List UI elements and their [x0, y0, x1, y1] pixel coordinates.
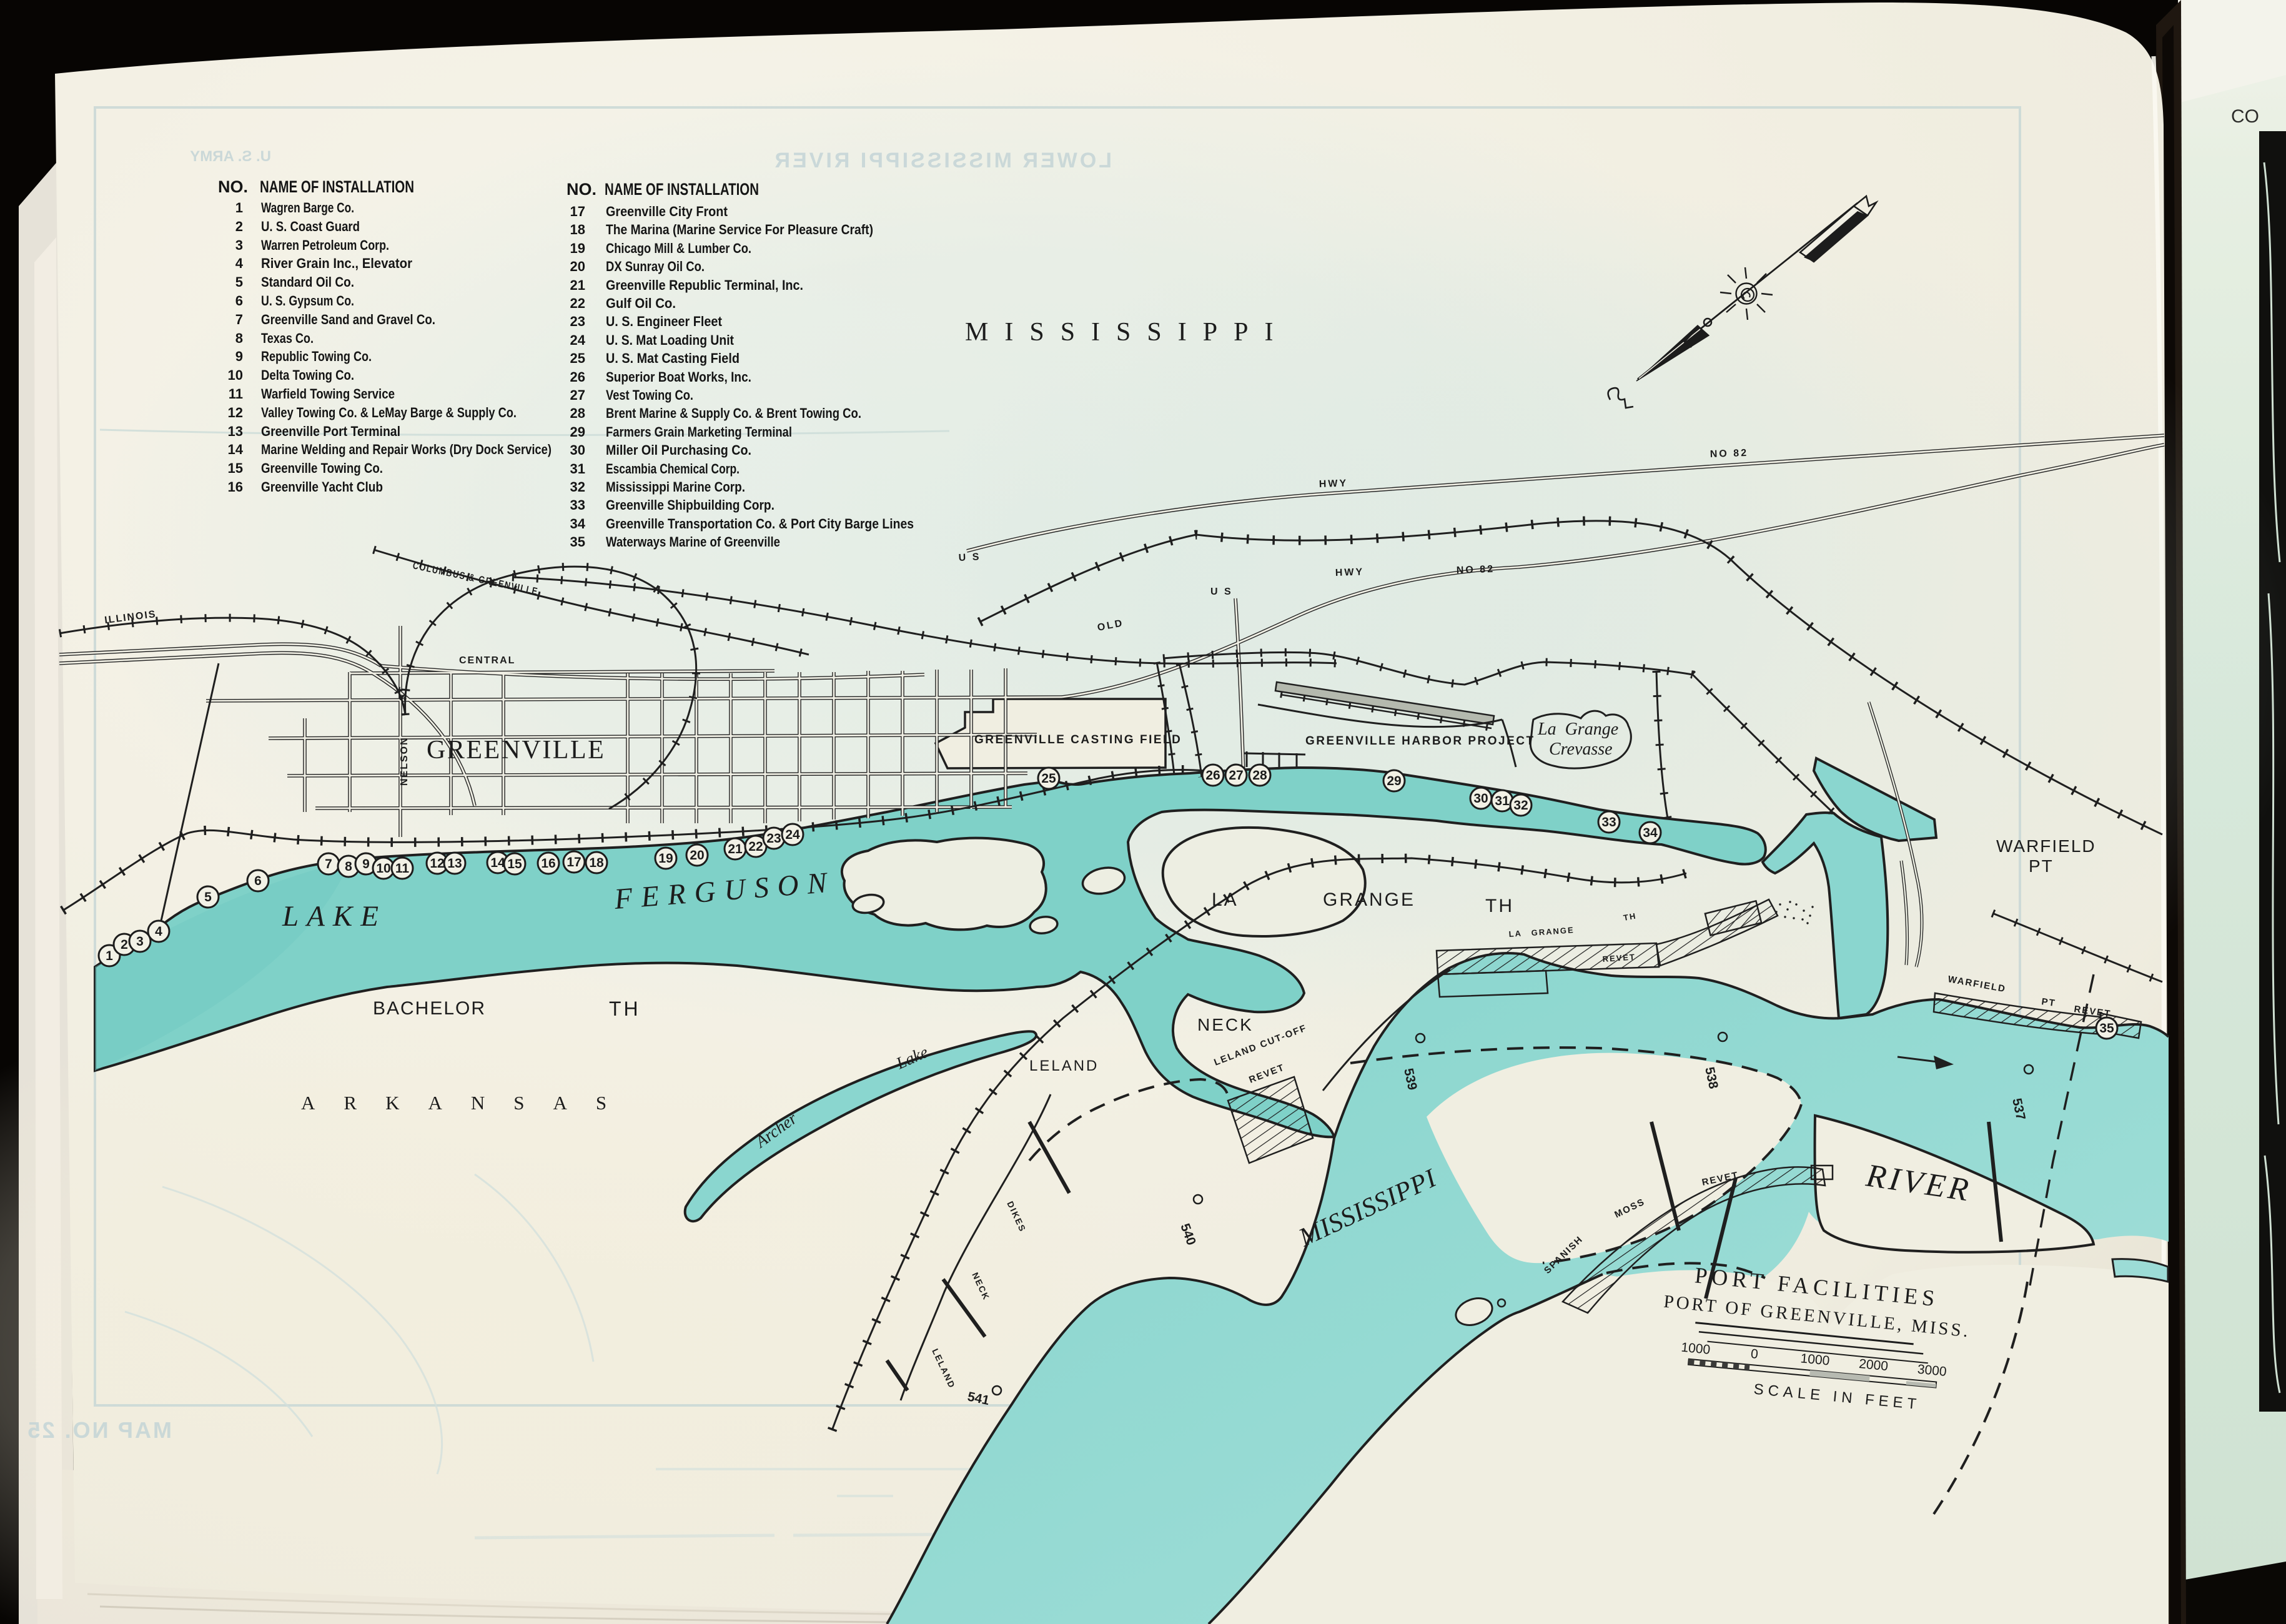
- svg-text:LA: LA: [1212, 889, 1239, 910]
- svg-text:16: 16: [541, 856, 555, 871]
- svg-text:3000: 3000: [1917, 1362, 1947, 1379]
- svg-text:Greenville Republic Terminal,: Greenville Republic Terminal, Inc.: [606, 277, 803, 293]
- svg-text:Brent Marine & Supply Co. & Br: Brent Marine & Supply Co. & Brent Towing…: [606, 405, 861, 421]
- svg-text:15: 15: [228, 460, 243, 476]
- svg-text:Vest Towing Co.: Vest Towing Co.: [606, 387, 693, 403]
- svg-text:23: 23: [570, 314, 585, 329]
- svg-text:ARKANSAS: ARKANSAS: [301, 1092, 635, 1114]
- svg-text:Crevasse: Crevasse: [1549, 740, 1613, 759]
- svg-text:U S: U S: [1210, 587, 1233, 597]
- svg-text:24: 24: [785, 828, 800, 842]
- svg-text:33: 33: [1601, 815, 1616, 829]
- svg-text:Miller Oil Purchasing Co.: Miller Oil Purchasing Co.: [606, 442, 751, 458]
- svg-text:32: 32: [570, 479, 585, 495]
- svg-text:LOWER MISSISSIPPI RIVER: LOWER MISSISSIPPI RIVER: [772, 149, 1112, 172]
- svg-text:Warren Petroleum Corp.: Warren Petroleum Corp.: [261, 237, 389, 253]
- svg-text:GRANGE: GRANGE: [1323, 889, 1415, 910]
- svg-text:U. S. ARMY: U. S. ARMY: [190, 148, 271, 165]
- svg-text:Delta Towing Co.: Delta Towing Co.: [261, 367, 354, 383]
- svg-text:NO.: NO.: [218, 177, 248, 196]
- svg-text:NECK: NECK: [1197, 1015, 1254, 1034]
- svg-text:14: 14: [490, 856, 505, 870]
- svg-text:25: 25: [570, 350, 585, 366]
- svg-text:10: 10: [228, 367, 243, 383]
- svg-text:MISSISSIPPI: MISSISSIPPI: [965, 318, 1289, 347]
- svg-text:24: 24: [570, 332, 586, 348]
- svg-text:34: 34: [1643, 826, 1658, 840]
- svg-text:MAP NO. 25: MAP NO. 25: [26, 1417, 172, 1443]
- svg-text:4: 4: [155, 924, 162, 939]
- svg-text:25: 25: [1041, 771, 1056, 786]
- svg-text:35: 35: [570, 534, 585, 550]
- svg-text:PT: PT: [2029, 856, 2054, 876]
- svg-text:15: 15: [507, 857, 522, 871]
- svg-text:Greenville Transportation Co.: Greenville Transportation Co. & Port Cit…: [606, 516, 914, 532]
- svg-text:19: 19: [658, 851, 673, 866]
- svg-text:Greenville Shipbuilding Corp.: Greenville Shipbuilding Corp.: [606, 497, 774, 513]
- svg-text:13: 13: [228, 423, 243, 439]
- svg-text:18: 18: [589, 856, 604, 870]
- svg-text:PT: PT: [2041, 996, 2056, 1009]
- svg-text:DX Sunray Oil Co.: DX Sunray Oil Co.: [606, 259, 705, 274]
- svg-text:28: 28: [1252, 768, 1267, 783]
- svg-text:31: 31: [570, 461, 585, 477]
- svg-text:2: 2: [121, 938, 128, 952]
- svg-text:7: 7: [235, 312, 243, 327]
- svg-text:17: 17: [567, 855, 581, 869]
- svg-text:CENTRAL: CENTRAL: [459, 655, 515, 666]
- svg-text:Texas Co.: Texas Co.: [261, 330, 314, 346]
- svg-text:U S: U S: [958, 552, 981, 563]
- svg-text:CO: CO: [2231, 106, 2259, 127]
- svg-text:29: 29: [1387, 774, 1401, 788]
- svg-text:TH: TH: [1485, 896, 1514, 916]
- svg-text:La Grange: La Grange: [1537, 720, 1618, 739]
- svg-text:U. S. Gypsum Co.: U. S. Gypsum Co.: [261, 293, 354, 309]
- svg-text:GREENVILLE CASTING FIELD: GREENVILLE CASTING FIELD: [974, 733, 1182, 746]
- svg-text:LAKE: LAKE: [282, 900, 387, 933]
- svg-text:NO 82: NO 82: [1710, 448, 1749, 460]
- svg-text:Escambia Chemical Corp.: Escambia Chemical Corp.: [606, 461, 740, 477]
- svg-text:0: 0: [1750, 1347, 1759, 1362]
- svg-text:Chicago Mill & Lumber Co.: Chicago Mill & Lumber Co.: [606, 240, 751, 256]
- svg-text:LELAND: LELAND: [1029, 1057, 1099, 1074]
- svg-text:11: 11: [229, 386, 243, 402]
- svg-text:2000: 2000: [1858, 1357, 1889, 1374]
- svg-text:8: 8: [235, 330, 243, 346]
- svg-text:23: 23: [766, 831, 781, 846]
- svg-text:HWY: HWY: [1319, 478, 1348, 490]
- svg-text:13: 13: [447, 856, 462, 871]
- svg-text:16: 16: [228, 479, 243, 495]
- svg-text:HWY: HWY: [1335, 567, 1365, 578]
- svg-text:River Grain Inc., Elevator: River Grain Inc., Elevator: [261, 255, 412, 271]
- svg-text:5: 5: [235, 274, 243, 290]
- svg-text:35: 35: [2099, 1021, 2114, 1036]
- svg-text:NO 82: NO 82: [1457, 564, 1495, 576]
- svg-text:22: 22: [570, 295, 585, 311]
- svg-text:Farmers Grain Marketing Termin: Farmers Grain Marketing Terminal: [606, 424, 792, 440]
- svg-text:BACHELOR: BACHELOR: [373, 998, 486, 1019]
- svg-text:21: 21: [728, 842, 743, 856]
- svg-text:14: 14: [228, 442, 244, 457]
- svg-text:30: 30: [570, 442, 585, 458]
- svg-text:2: 2: [235, 219, 243, 234]
- svg-text:Greenville Towing Co.: Greenville Towing Co.: [261, 460, 383, 476]
- svg-text:20: 20: [570, 259, 585, 274]
- svg-text:GREENVILLE HARBOR PROJECT: GREENVILLE HARBOR PROJECT: [1305, 735, 1535, 748]
- svg-text:9: 9: [362, 857, 370, 871]
- svg-text:Greenville Port Terminal: Greenville Port Terminal: [261, 423, 400, 439]
- svg-text:Standard Oil Co.: Standard Oil Co.: [261, 274, 354, 290]
- svg-text:17: 17: [570, 204, 585, 219]
- svg-text:27: 27: [570, 387, 585, 403]
- svg-text:26: 26: [570, 369, 585, 385]
- svg-text:12: 12: [228, 405, 243, 420]
- svg-text:10: 10: [376, 861, 390, 876]
- svg-text:27: 27: [1229, 768, 1243, 783]
- svg-text:U. S. Engineer Fleet: U. S. Engineer Fleet: [606, 314, 723, 329]
- svg-text:12: 12: [430, 856, 444, 871]
- svg-text:LA: LA: [1508, 929, 1522, 939]
- svg-text:1: 1: [106, 949, 113, 963]
- svg-text:19: 19: [570, 240, 585, 256]
- svg-text:6: 6: [254, 874, 262, 888]
- svg-text:Waterways Marine of Greenville: Waterways Marine of Greenville: [606, 534, 780, 550]
- svg-text:28: 28: [570, 405, 585, 421]
- svg-text:GREENVILLE: GREENVILLE: [427, 736, 605, 765]
- svg-text:WARFIELD: WARFIELD: [1996, 836, 2096, 856]
- svg-text:Mississippi Marine Corp.: Mississippi Marine Corp.: [606, 479, 745, 495]
- svg-text:Gulf Oil Co.: Gulf Oil Co.: [606, 295, 676, 311]
- svg-text:1: 1: [235, 200, 243, 215]
- svg-text:Greenville Yacht Club: Greenville Yacht Club: [261, 479, 383, 495]
- svg-text:33: 33: [570, 497, 585, 513]
- svg-text:Greenville City Front: Greenville City Front: [606, 204, 728, 219]
- svg-text:26: 26: [1205, 768, 1220, 783]
- svg-text:7: 7: [325, 857, 332, 871]
- svg-text:The Marina (Marine Service For: The Marina (Marine Service For Pleasure …: [606, 222, 873, 237]
- svg-text:Superior Boat Works, Inc.: Superior Boat Works, Inc.: [606, 369, 751, 385]
- svg-text:3: 3: [136, 934, 144, 949]
- svg-text:21: 21: [570, 277, 585, 293]
- svg-text:U. S. Mat Casting Field: U. S. Mat Casting Field: [606, 350, 740, 366]
- svg-text:8: 8: [345, 859, 352, 874]
- svg-text:31: 31: [1495, 794, 1510, 808]
- svg-text:34: 34: [570, 516, 586, 532]
- svg-text:Valley Towing Co. & LeMay Barg: Valley Towing Co. & LeMay Barge & Supply…: [261, 405, 517, 420]
- svg-text:Republic Towing Co.: Republic Towing Co.: [261, 349, 372, 364]
- svg-text:NO.: NO.: [567, 180, 596, 199]
- svg-text:3: 3: [235, 237, 243, 253]
- svg-text:NELSON: NELSON: [399, 736, 410, 786]
- svg-text:20: 20: [690, 848, 704, 863]
- svg-text:1000: 1000: [1800, 1351, 1831, 1368]
- svg-text:6: 6: [235, 293, 243, 309]
- svg-text:30: 30: [1473, 791, 1488, 806]
- svg-text:NAME OF INSTALLATION: NAME OF INSTALLATION: [260, 177, 414, 196]
- svg-text:22: 22: [748, 839, 763, 854]
- svg-text:U. S. Coast Guard: U. S. Coast Guard: [261, 219, 360, 234]
- svg-text:18: 18: [570, 222, 585, 237]
- svg-text:4: 4: [235, 255, 244, 271]
- svg-text:5: 5: [204, 890, 212, 904]
- svg-text:9: 9: [235, 349, 243, 364]
- svg-text:11: 11: [395, 861, 410, 876]
- svg-text:Warfield Towing Service: Warfield Towing Service: [261, 386, 395, 402]
- svg-text:ST: ST: [398, 686, 408, 701]
- svg-text:TH: TH: [609, 998, 641, 1020]
- svg-text:Wagren Barge Co.: Wagren Barge Co.: [261, 200, 354, 215]
- svg-text:29: 29: [570, 424, 585, 440]
- svg-text:32: 32: [1513, 798, 1528, 813]
- svg-text:1000: 1000: [1680, 1340, 1711, 1357]
- svg-text:Marine Welding and Repair Work: Marine Welding and Repair Works (Dry Doc…: [261, 442, 552, 457]
- svg-text:NAME OF INSTALLATION: NAME OF INSTALLATION: [605, 180, 759, 199]
- svg-text:U. S. Mat Loading Unit: U. S. Mat Loading Unit: [606, 332, 735, 348]
- svg-text:Greenville Sand and Gravel Co.: Greenville Sand and Gravel Co.: [261, 312, 435, 327]
